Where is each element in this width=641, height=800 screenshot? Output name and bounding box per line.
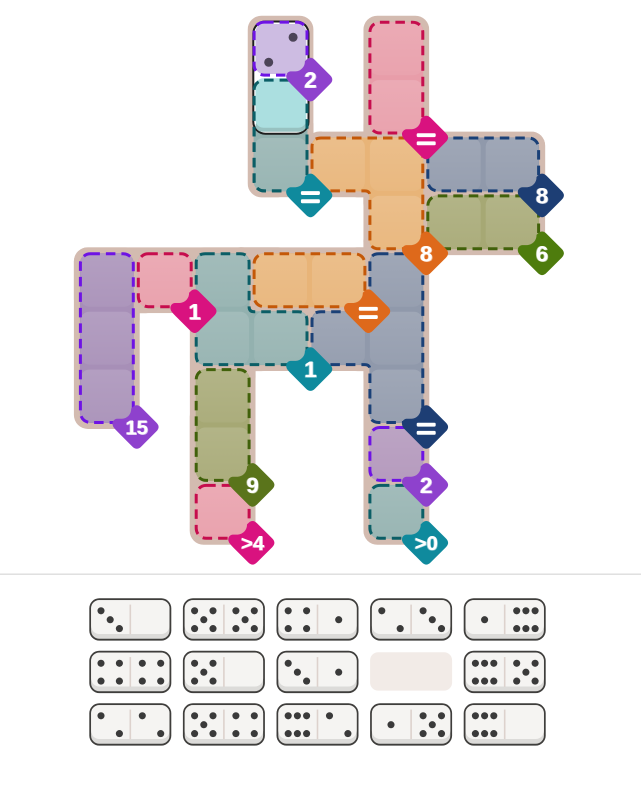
- svg-text:1: 1: [304, 357, 317, 382]
- svg-text:8: 8: [536, 184, 549, 209]
- svg-text:6: 6: [536, 241, 549, 266]
- svg-text:1: 1: [188, 299, 201, 324]
- svg-text:>4: >4: [241, 533, 265, 555]
- svg-text:2: 2: [420, 473, 433, 498]
- svg-text:>0: >0: [415, 533, 438, 555]
- svg-text:2: 2: [304, 68, 317, 93]
- svg-text:9: 9: [246, 473, 259, 498]
- svg-text:15: 15: [126, 417, 149, 439]
- svg-text:8: 8: [420, 241, 433, 266]
